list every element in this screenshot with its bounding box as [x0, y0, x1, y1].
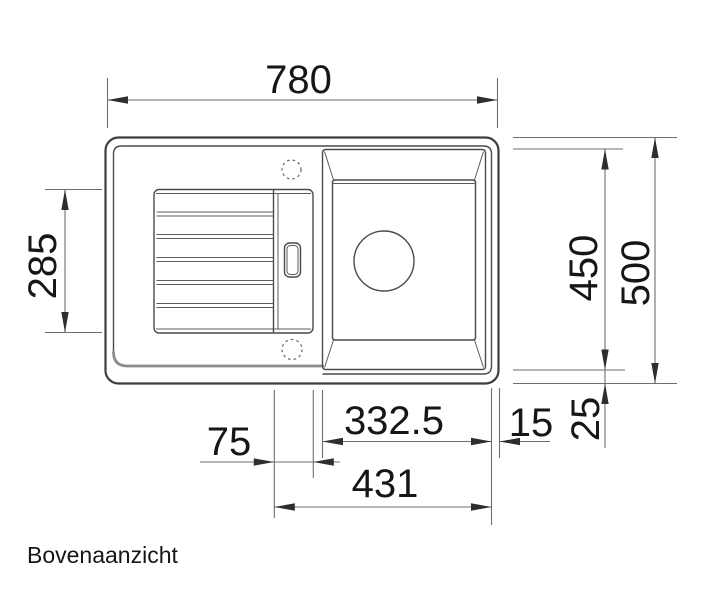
arrow-right: [471, 503, 492, 510]
drainboard: [154, 190, 313, 334]
rim-shadow: [114, 352, 323, 366]
arrow-down: [61, 312, 68, 333]
arrow-left: [313, 458, 334, 465]
arrow-up: [601, 149, 608, 170]
tap-hole-bottom: [282, 340, 302, 360]
bowl: [323, 150, 486, 370]
dimension-recess-height: 285: [21, 190, 102, 333]
dim-label-tray-strip-width: 75: [207, 420, 252, 464]
dim-label-overall-width: 780: [265, 58, 332, 102]
sink-top-view-drawing: 780 285 450 500 25: [0, 0, 727, 600]
arrow-down: [601, 350, 608, 371]
dimension-basin-zone-height: 450: [513, 149, 625, 370]
arrow-up: [61, 190, 68, 211]
dim-label-bottom-rim-height: 25: [564, 397, 608, 442]
tap-hole-top: [282, 160, 301, 179]
dim-label-bowl-to-rim-width: 332.5: [344, 399, 444, 443]
arrow-right: [477, 96, 498, 103]
dim-label-basin-zone-height: 450: [562, 235, 606, 302]
arrow-right: [471, 438, 492, 445]
arrow-left: [274, 503, 295, 510]
dim-label-overall-depth: 500: [614, 240, 658, 307]
dim-label-bowl-area-total-width: 431: [352, 462, 419, 506]
dim-label-recess-height: 285: [21, 233, 65, 300]
drain-circle: [354, 231, 414, 291]
drawing-canvas: 780 285 450 500 25: [0, 0, 727, 600]
bowl-surround: [323, 150, 486, 370]
arrow-right: [254, 458, 274, 465]
arrow-left: [108, 96, 129, 103]
dimension-overall-width: 780: [108, 58, 498, 128]
arrow-left: [323, 438, 344, 445]
dimension-bottom-rim-height: 25: [564, 370, 609, 448]
dimension-tray-strip-width: 75: [200, 390, 340, 518]
dim-label-right-rim-width: 15: [509, 401, 554, 445]
dimension-right-rim-width: 15: [500, 388, 554, 458]
dimension-bowl-area-total-width: 431: [274, 462, 491, 511]
view-caption: Bovenaanzicht: [27, 542, 178, 568]
drainboard-ridges: [157, 212, 274, 308]
arrow-up: [651, 138, 658, 159]
utensil-slot-inner: [287, 246, 298, 275]
arrow-down: [651, 363, 658, 384]
